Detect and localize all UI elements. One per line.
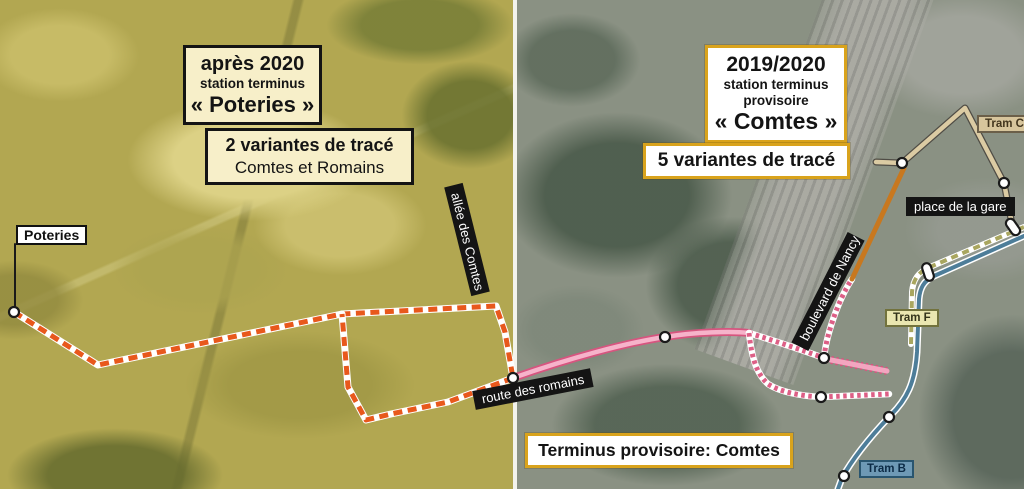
tram-b-label: Tram B — [859, 460, 914, 478]
poteries-station-label: Poteries — [16, 225, 87, 245]
left-title-box: après 2020 station terminus « Poteries » — [183, 45, 322, 125]
right-title-line1: 2019/2020 — [708, 53, 844, 77]
right-title-line2: station terminus — [708, 77, 844, 93]
right-title-box: 2019/2020 station terminus provisoire « … — [705, 45, 847, 143]
left-title-line1: après 2020 — [188, 53, 317, 76]
map-figure: après 2020 station terminus « Poteries »… — [0, 0, 1024, 489]
left-variants-line1: 2 variantes de tracé — [210, 134, 409, 157]
left-variants-box: 2 variantes de tracé Comtes et Romains — [205, 128, 414, 185]
tram-f-label: Tram F — [885, 309, 939, 327]
right-title-line3: provisoire — [708, 93, 844, 109]
right-variants-box: 5 variantes de tracé — [643, 143, 850, 179]
left-title-line3: « Poteries » — [188, 92, 317, 117]
left-variants-line2: Comtes et Romains — [210, 157, 409, 178]
place-de-la-gare-label: place de la gare — [906, 197, 1015, 216]
right-variants-line1: 5 variantes de tracé — [646, 150, 847, 172]
tram-c-label: Tram C — [977, 115, 1024, 133]
left-title-line2: station terminus — [188, 76, 317, 92]
terminus-provisoire-text: Terminus provisoire: Comtes — [528, 440, 790, 461]
terminus-provisoire-box: Terminus provisoire: Comtes — [525, 433, 793, 468]
right-title-line4: « Comtes » — [708, 108, 844, 134]
